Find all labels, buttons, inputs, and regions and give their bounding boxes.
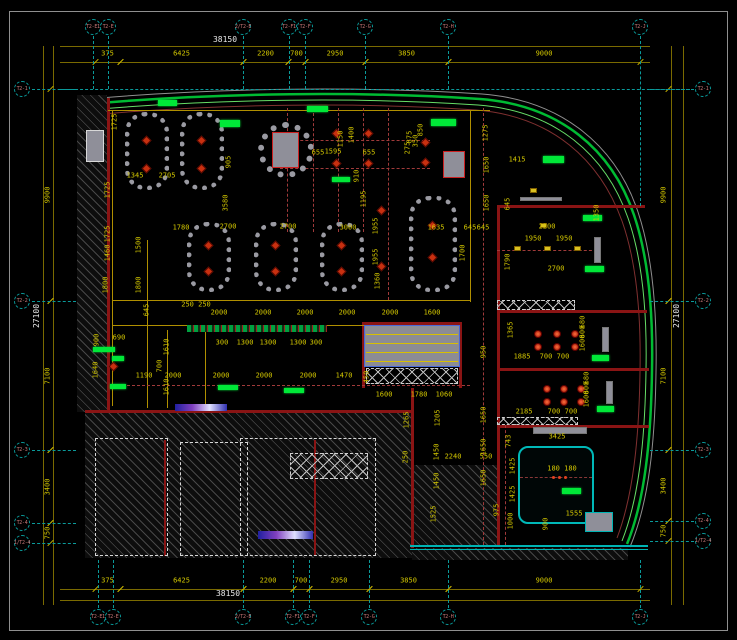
overall-dimension: 27100: [673, 304, 681, 328]
grid-axis-line: [289, 36, 290, 89]
column: [594, 237, 601, 263]
partition-wall: [497, 205, 500, 547]
spotlight: [543, 385, 551, 393]
column: [520, 197, 562, 201]
grid-axis-line: [650, 301, 694, 302]
column: [606, 381, 613, 404]
dimension-label: 375: [101, 578, 114, 585]
grid-axis-line: [650, 450, 694, 451]
grid-bubble: T2-2: [14, 293, 30, 309]
interior-dimension: 3000: [340, 225, 357, 232]
overall-dimension: 38150: [213, 36, 237, 44]
grid-bubble: T2-E1: [85, 19, 101, 35]
grid-bubble: T2-G: [361, 609, 377, 625]
interior-dimension: 1600: [424, 310, 441, 317]
ceiling-soffit-line: [205, 330, 206, 408]
highlight-marker: [592, 355, 609, 361]
interior-dimension: 1060: [436, 392, 453, 399]
interior-dimension: 2000: [211, 310, 228, 317]
interior-dimension: 2000: [255, 310, 272, 317]
interior-dimension: 1610: [164, 379, 171, 396]
wall-light: [544, 246, 551, 251]
interior-dimension: 1265: [404, 412, 411, 429]
interior-dimension: 975: [494, 504, 501, 517]
teal-wall: [410, 549, 648, 550]
interior-dimension: 180 180: [547, 466, 577, 473]
interior-dimension: 655: [312, 150, 325, 157]
dimension-label: 7100: [661, 367, 668, 384]
grid-bubble: T2-J: [632, 19, 648, 35]
interior-dimension: 1650: [484, 195, 491, 212]
interior-dimension: 1300: [237, 340, 254, 347]
interior-dimension: 645: [505, 198, 512, 211]
partition-wall: [497, 368, 649, 371]
dimension-label: 9000: [536, 51, 553, 58]
column: [585, 512, 613, 532]
interior-dimension: 1470: [336, 373, 353, 380]
ceiling-soffit-line: [108, 110, 490, 111]
interior-dimension: 250: [403, 451, 410, 464]
grid-bubble: T2-F1: [285, 609, 301, 625]
teal-wall: [410, 545, 648, 547]
interior-dimension: 1650: [481, 407, 488, 424]
cross-braced-shaft: [366, 368, 458, 384]
grid-bubble: T2-4: [14, 515, 30, 531]
interior-dimension: 1780: [411, 392, 428, 399]
grid-axis-line: [305, 36, 306, 89]
interior-dimension: 1650: [481, 439, 488, 456]
dimension-label: 9900: [45, 187, 52, 204]
interior-dimension: 2240: [445, 454, 462, 461]
interior-dimension: 2000: [339, 310, 356, 317]
spotlight: [534, 343, 542, 351]
grid-axis-line: [448, 560, 449, 608]
spotlight: [534, 330, 542, 338]
grid-axis-line: [650, 521, 694, 522]
interior-dimension: 690: [113, 335, 126, 342]
dimension-label: 2950: [327, 51, 344, 58]
cross-braced-shaft: [290, 453, 368, 479]
grid-axis-line: [32, 523, 76, 524]
interior-dimension: 450: [364, 371, 371, 384]
grid-bubble: T2-E1: [90, 609, 106, 625]
interior-dimension: 350: [413, 135, 420, 148]
interior-dimension: 1700: [460, 245, 467, 262]
grid-axis-line: [448, 36, 449, 89]
dimension-label: 3400: [661, 477, 668, 494]
interior-dimension: 905: [226, 156, 233, 169]
interior-dimension: 700: [157, 360, 164, 373]
dimension-label: 700: [295, 578, 308, 585]
highlight-marker: [431, 119, 456, 126]
grid-bubble: T2-H: [440, 19, 456, 35]
grid-bubble: 1/T2-4: [695, 533, 711, 549]
interior-dimension: 1425: [510, 486, 517, 503]
interior-dimension: 2700: [548, 266, 565, 273]
interior-dimension: 1300: [290, 340, 307, 347]
grid-bubble: T2-3: [14, 442, 30, 458]
column: [86, 130, 104, 162]
dimension-label: 6425: [173, 51, 190, 58]
downlight-diamond: [364, 159, 374, 169]
grid-axis-line: [369, 560, 370, 608]
interior-dimension: 850: [418, 124, 425, 137]
wall-light: [530, 188, 537, 193]
booth-seating: [409, 196, 457, 292]
glass-partition: [258, 531, 313, 539]
small-light-dot: [552, 476, 555, 479]
downlight-diamond: [421, 158, 431, 168]
dimension-label: 3850: [398, 51, 415, 58]
interior-dimension: 2000: [256, 373, 273, 380]
small-light-dot: [564, 476, 567, 479]
grid-axis-line: [243, 36, 244, 89]
grid-bubble: T2-F: [297, 19, 313, 35]
grid-bubble: 2/T2-E: [235, 19, 251, 35]
interior-dimension: 1640: [93, 362, 100, 379]
grid-axis-line: [640, 36, 641, 206]
interior-dimension: 2705: [159, 173, 176, 180]
interior-dimension: 275: [405, 142, 412, 155]
grid-axis-line: [60, 89, 690, 90]
interior-dimension: 1150: [338, 131, 345, 148]
small-light-dot: [558, 476, 561, 479]
interior-dimension: 2000: [213, 373, 230, 380]
highlight-marker: [585, 266, 604, 272]
interior-dimension: 910: [354, 170, 361, 183]
highlight-marker: [307, 106, 328, 112]
spotlight: [543, 398, 551, 406]
interior-dimension: 1595: [325, 149, 342, 156]
highlight-marker: [110, 384, 126, 389]
interior-dimension: 2185: [516, 409, 533, 416]
generated-drawing-elements: 1725905134527056551595655140011509101195…: [0, 0, 737, 640]
grid-bubble: T2-H: [440, 609, 456, 625]
highlight-marker: [220, 120, 240, 127]
highlight-marker: [597, 406, 614, 412]
interior-dimension: 250 250: [181, 302, 211, 309]
downlight-diamond: [364, 129, 374, 139]
booth-seating: [180, 112, 224, 190]
core-room-outline: [95, 438, 168, 556]
interior-dimension: 1600: [580, 335, 587, 352]
interior-dimension: 2700: [280, 224, 297, 231]
interior-dimension: 1725: [105, 226, 112, 243]
interior-dimension: 1190: [136, 373, 153, 380]
grid-bubble: T2-1: [695, 81, 711, 97]
ceiling-soffit-line: [112, 300, 470, 301]
interior-dimension: 1350: [594, 205, 601, 222]
highlight-marker: [218, 385, 238, 390]
partition-wall: [85, 410, 413, 413]
dim-line: [60, 62, 650, 63]
grid-axis-line: [640, 560, 641, 608]
lighting-axis-line: [363, 108, 364, 232]
interior-dimension: 1800: [136, 277, 143, 294]
interior-dimension: 700: [540, 354, 553, 361]
highlight-marker: [158, 100, 177, 106]
interior-dimension: 700: [565, 409, 578, 416]
dimension-label: 2200: [260, 578, 277, 585]
interior-dimension: 2700: [220, 224, 237, 231]
interior-dimension: 1400: [349, 127, 356, 144]
grid-bubble: T2-3: [695, 442, 711, 458]
grid-bubble: 2/T2-E: [235, 609, 251, 625]
grid-axis-line: [108, 36, 109, 89]
interior-dimension: 300: [310, 340, 323, 347]
dim-line: [60, 46, 650, 47]
lighting-axis-line: [338, 108, 339, 232]
louver-slat-line: [366, 361, 458, 362]
interior-dimension: 3580: [223, 195, 230, 212]
dimension-label: 700: [290, 51, 303, 58]
core-room-outline: [180, 442, 248, 556]
spotlight: [560, 385, 568, 393]
spotlight: [560, 398, 568, 406]
highlight-marker: [112, 356, 124, 361]
interior-dimension: 645: [477, 225, 490, 232]
grid-axis-line: [113, 560, 114, 608]
interior-dimension: 1205: [435, 410, 442, 427]
interior-dimension: 3425: [549, 434, 566, 441]
lighting-axis-line: [313, 108, 314, 232]
grid-axis-line: [32, 301, 76, 302]
interior-dimension: 950: [481, 346, 488, 359]
column: [602, 327, 609, 352]
overall-dimension: 38150: [216, 590, 240, 598]
grid-axis-line: [365, 36, 366, 89]
grid-bubble: T2-2: [695, 293, 711, 309]
dimension-label: 3850: [400, 578, 417, 585]
grid-axis-line: [309, 560, 310, 608]
interior-dimension: 645: [464, 225, 477, 232]
interior-dimension: 1195: [361, 191, 368, 208]
interior-dimension: 300: [216, 340, 229, 347]
spotlight: [553, 343, 561, 351]
interior-dimension: 1790: [505, 254, 512, 271]
interior-dimension: 1450: [434, 473, 441, 490]
downlight-diamond: [332, 159, 342, 169]
dimension-label: 750: [661, 525, 668, 538]
grid-axis-line: [32, 89, 76, 90]
interior-dimension: 700: [548, 409, 561, 416]
dimension-label: 9000: [536, 578, 553, 585]
interior-dimension: 1500: [136, 237, 143, 254]
interior-dimension: 1600: [584, 391, 591, 408]
lighting-axis-line: [388, 108, 389, 300]
interior-dimension: 1955: [373, 249, 380, 266]
interior-dimension: 1650: [481, 470, 488, 487]
grid-bubble: T2-1: [14, 81, 30, 97]
grid-axis-line: [650, 541, 694, 542]
highlight-marker: [332, 177, 350, 182]
louver-slat-line: [366, 352, 458, 353]
dimension-label: 2200: [257, 51, 274, 58]
wall-light: [574, 246, 581, 251]
interior-dimension: 2000: [300, 373, 317, 380]
partition-wall: [497, 310, 647, 313]
interior-dimension: 1800: [103, 277, 110, 294]
glass-partition: [175, 404, 227, 411]
interior-dimension: 875: [407, 131, 414, 144]
grid-axis-line: [243, 560, 244, 608]
interior-dimension: 2000: [297, 310, 314, 317]
grid-axis-line: [32, 543, 76, 544]
interior-dimension: 700: [557, 354, 570, 361]
ceiling-soffit-line: [147, 240, 148, 408]
grid-bubble: T2-F: [301, 609, 317, 625]
interior-dimension: 1955: [373, 218, 380, 235]
bar-counter: [187, 325, 327, 332]
ceiling-soffit-line: [470, 110, 471, 302]
highlight-marker: [284, 388, 304, 393]
dim-line: [53, 46, 54, 605]
interior-dimension: 1415: [509, 157, 526, 164]
cad-drawing-canvas: 1725905134527056551595655140011509101195…: [0, 0, 737, 640]
private-room-ceiling: [518, 446, 594, 524]
highlight-marker: [543, 156, 564, 163]
interior-dimension: 743: [506, 435, 513, 448]
highlight-marker: [562, 488, 581, 494]
booth-seating: [254, 222, 298, 292]
grid-bubble: T2-G: [357, 19, 373, 35]
partition-wall: [497, 205, 645, 208]
overall-dimension: 27100: [33, 304, 41, 328]
interior-dimension: 900: [94, 334, 101, 347]
interior-dimension: 1000: [508, 513, 515, 530]
interior-dimension: 1525: [431, 506, 438, 523]
dimension-label: 750: [45, 527, 52, 540]
interior-dimension: 1635: [428, 225, 445, 232]
interior-dimension: 1450: [434, 444, 441, 461]
dimension-label: 2950: [331, 578, 348, 585]
grid-axis-line: [293, 560, 294, 608]
grid-bubble: 1/T2-4: [14, 535, 30, 551]
interior-dimension: 1885: [514, 354, 531, 361]
grid-bubble: T2-4: [695, 513, 711, 529]
interior-dimension: 1300: [260, 340, 277, 347]
interior-dimension: 2000: [382, 310, 399, 317]
dimension-label: 9900: [661, 187, 668, 204]
interior-dimension: 1365: [508, 322, 515, 339]
booth-seating: [320, 222, 364, 292]
grid-axis-line: [93, 36, 94, 89]
interior-dimension: 1950: [525, 236, 542, 243]
interior-dimension: 1360: [375, 273, 382, 290]
interior-dimension: 1780: [173, 225, 190, 232]
grid-bubble: T2-E: [100, 19, 116, 35]
grid-axis-line: [650, 89, 694, 90]
grid-bubble: T2-E: [105, 609, 121, 625]
downlight-diamond: [109, 362, 119, 372]
interior-dimension: 1725: [105, 182, 112, 199]
grid-axis-line: [98, 560, 99, 608]
grid-bubble: T2-F1: [281, 19, 297, 35]
interior-dimension: 1600: [376, 392, 393, 399]
interior-dimension: 1425: [510, 458, 517, 475]
grid-axis-line: [32, 450, 76, 451]
dimension-label: 3400: [45, 478, 52, 495]
grid-bubble: T2-J: [632, 609, 648, 625]
louver-slat-line: [366, 343, 458, 344]
interior-dimension: 900: [543, 518, 550, 531]
wall-light: [514, 246, 521, 251]
partition-wall: [411, 388, 414, 548]
dimension-label: 6425: [173, 578, 190, 585]
interior-dimension: 2200: [539, 224, 556, 231]
interior-dimension: 1460: [105, 245, 112, 262]
spotlight: [553, 330, 561, 338]
interior-dimension: 655: [363, 150, 376, 157]
interior-dimension: 645: [144, 304, 151, 317]
louver-slat-line: [366, 334, 458, 335]
interior-dimension: 1650: [484, 157, 491, 174]
dim-line: [43, 46, 44, 605]
dim-line: [60, 589, 650, 590]
cross-braced-shaft: [497, 417, 578, 425]
interior-dimension: 1555: [566, 511, 583, 518]
dim-line: [60, 600, 650, 601]
interior-dimension: 1275: [483, 125, 490, 142]
column: [272, 132, 299, 168]
downlight-diamond: [377, 206, 387, 216]
interior-dimension: 1610: [164, 339, 171, 356]
interior-dimension: 1345: [127, 173, 144, 180]
interior-dimension: 1950: [556, 236, 573, 243]
dimension-label: 7100: [45, 367, 52, 384]
cross-braced-shaft: [497, 300, 575, 310]
interior-dimension: 1725: [112, 114, 119, 131]
booth-seating: [187, 222, 231, 292]
column: [443, 151, 465, 178]
highlight-marker: [93, 347, 115, 352]
